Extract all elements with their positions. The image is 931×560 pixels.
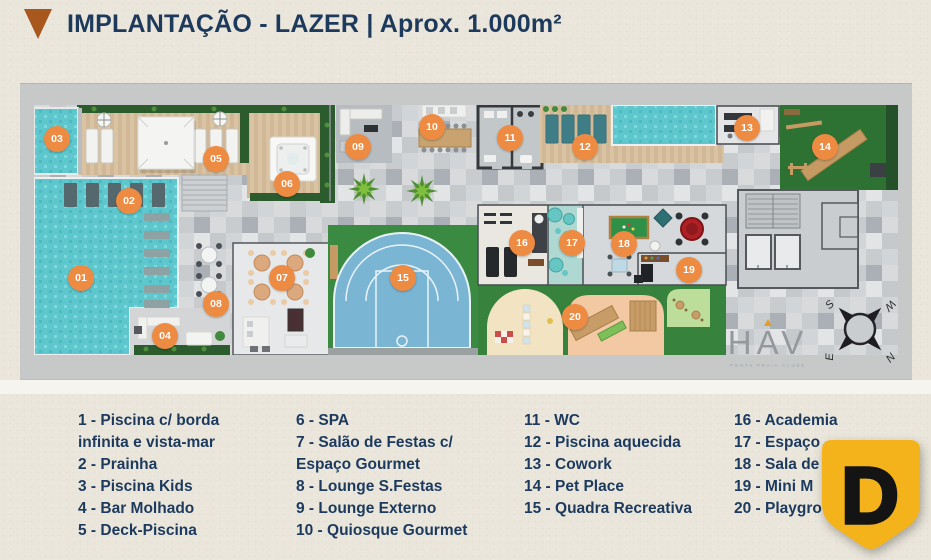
site-plan-panel: 0102030405060708091011121314151617181920… xyxy=(20,83,912,380)
hav-logo-caret-icon xyxy=(764,319,772,326)
legend-item: 13 - Cowork xyxy=(524,454,724,476)
plan-marker-14: 14 xyxy=(812,134,838,160)
legend-item: 7 - Salão de Festas c/ Espaço Gourmet xyxy=(296,432,488,476)
hav-logo-text: HAV xyxy=(728,326,808,359)
legend-item: 8 - Lounge S.Festas xyxy=(296,476,488,498)
d-badge: D xyxy=(820,438,922,552)
legend-item: 9 - Lounge Externo xyxy=(296,498,488,520)
legend-column-2: 6 - SPA7 - Salão de Festas c/ Espaço Gou… xyxy=(296,410,488,542)
legend-item: 4 - Bar Molhado xyxy=(78,498,268,520)
plan-marker-07: 07 xyxy=(269,265,295,291)
page-title: IMPLANTAÇÃO - LAZER | Aprox. 1.000m² xyxy=(67,10,562,39)
compass-letter: W xyxy=(881,297,898,314)
plan-marker-03: 03 xyxy=(44,126,70,152)
legend-item: 15 - Quadra Recreativa xyxy=(524,498,724,520)
d-badge-letter: D xyxy=(841,451,899,540)
legend-item: 3 - Piscina Kids xyxy=(78,476,268,498)
compass-letter: N xyxy=(883,350,897,364)
compass-rose-icon: S W E N xyxy=(818,291,902,371)
legend-item: 12 - Piscina aquecida xyxy=(524,432,724,454)
legend-item: 14 - Pet Place xyxy=(524,476,724,498)
divider-strip xyxy=(0,380,931,394)
plan-marker-04: 04 xyxy=(152,323,178,349)
plan-marker-13: 13 xyxy=(734,115,760,141)
hav-logo-tagline: PONTA PRAIA CLUBE xyxy=(720,363,816,368)
legend-item: 1 - Piscina c/ borda infinita e vista-ma… xyxy=(78,410,268,454)
plan-marker-01: 01 xyxy=(68,265,94,291)
plan-marker-19: 19 xyxy=(676,257,702,283)
plan-marker-18: 18 xyxy=(611,231,637,257)
legend-column-1: 1 - Piscina c/ borda infinita e vista-ma… xyxy=(78,410,268,542)
legend-item: 6 - SPA xyxy=(296,410,488,432)
plan-marker-10: 10 xyxy=(419,114,445,140)
legend-item: 5 - Deck-Piscina xyxy=(78,520,268,542)
plan-marker-09: 09 xyxy=(345,134,371,160)
legend-item: 10 - Quiosque Gourmet xyxy=(296,520,488,542)
plan-marker-12: 12 xyxy=(572,134,598,160)
compass-letter: S xyxy=(823,298,837,312)
legend-column-3: 11 - WC12 - Piscina aquecida13 - Cowork1… xyxy=(524,410,724,520)
compass-letter: E xyxy=(824,353,836,361)
plan-marker-02: 02 xyxy=(116,188,142,214)
plan-marker-15: 15 xyxy=(390,265,416,291)
legend-item: 16 - Academia xyxy=(734,410,924,432)
plan-marker-16: 16 xyxy=(509,230,535,256)
plan-marker-08: 08 xyxy=(203,291,229,317)
plan-marker-11: 11 xyxy=(497,125,523,151)
plan-marker-05: 05 xyxy=(203,146,229,172)
legend-item: 11 - WC xyxy=(524,410,724,432)
hav-logo: HAV PONTA PRAIA CLUBE xyxy=(720,326,816,368)
page-header: IMPLANTAÇÃO - LAZER | Aprox. 1.000m² xyxy=(24,9,562,39)
bullet-triangle-icon xyxy=(24,9,52,39)
legend: 1 - Piscina c/ borda infinita e vista-ma… xyxy=(0,410,931,560)
plan-marker-20: 20 xyxy=(562,304,588,330)
plan-marker-17: 17 xyxy=(559,230,585,256)
plan-marker-06: 06 xyxy=(274,171,300,197)
legend-item: 2 - Prainha xyxy=(78,454,268,476)
